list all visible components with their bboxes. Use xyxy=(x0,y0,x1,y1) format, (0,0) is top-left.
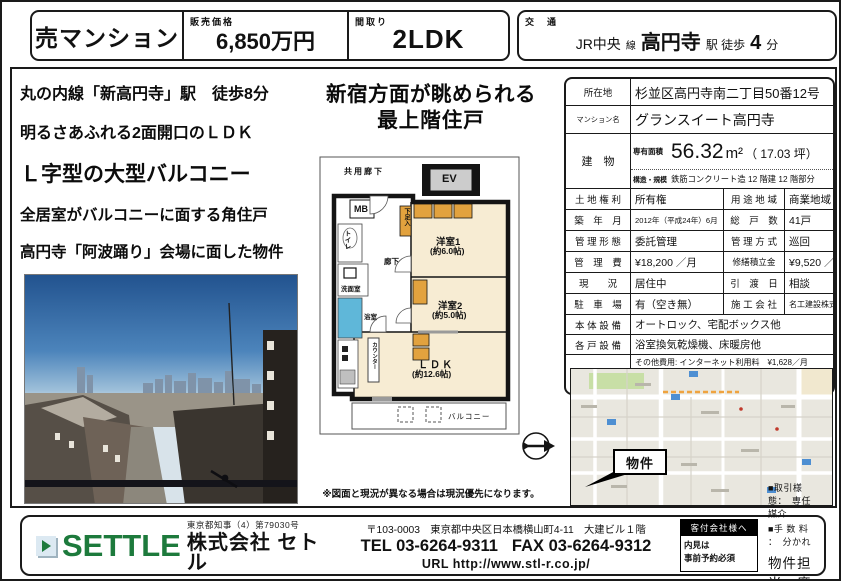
contact-person: 物件担当：廣田 xyxy=(768,552,814,581)
building-label: 建 物 xyxy=(566,134,631,188)
area-number: 56.32 xyxy=(671,140,724,164)
catch-copy-line: 明るさあふれる2面開口のＬＤＫ xyxy=(20,119,306,143)
headline-line1: 新宿方面が眺められる xyxy=(300,82,562,108)
zoning-label: 用 途 地 域 xyxy=(724,189,785,209)
header-left-box: 売マンション 販売価格 6,850万円 間取り 2LDK xyxy=(30,10,510,61)
footer: SETTLE 東京都知事（4）第79030号 株式会社 セトル 〒103-000… xyxy=(20,515,826,576)
zoning-value: 商業地域 xyxy=(785,189,833,209)
catch-copy-line: 高円寺「阿波踊り」会場に面した物件 xyxy=(20,240,306,262)
tel-fax-line: TEL 03-6264-9311 FAX 03-6264-9312 xyxy=(361,537,652,556)
access-station: 高円寺 xyxy=(641,26,701,55)
table-row-mgmt-fee: 管 理 費 ¥18,200 ／月 修繕積立金 ¥9,520 ／月 xyxy=(566,251,833,272)
units-value: 41戸 xyxy=(785,210,833,230)
access-line-unit: 線 xyxy=(626,37,636,52)
headline: 新宿方面が眺められる 最上階住戸 xyxy=(300,82,562,133)
units-label: 総 戸 数 xyxy=(724,210,785,230)
plan-corridor-label: 廊下 xyxy=(384,256,399,267)
parking-label: 駐 車 場 xyxy=(566,294,631,314)
layout-cell: 間取り 2LDK xyxy=(347,12,508,59)
access-value: JR中央 線 高円寺 駅 徒歩 4 分 xyxy=(576,26,779,55)
price-cell: 販売価格 6,850万円 xyxy=(182,12,347,59)
plan-note: ※図面と現況が異なる場合は現況優先になります。 xyxy=(298,486,564,500)
structure-value: 鉄筋コンクリート造 12 階建 12 階部分 xyxy=(671,173,815,185)
plan-washroom-label: 洗面室 xyxy=(341,283,361,293)
access-line-name: JR中央 xyxy=(576,34,621,54)
mgmt-fee-label: 管 理 費 xyxy=(566,252,631,272)
agent-notice-box: 客付会社様へ 内見は 事前予約必須 xyxy=(680,519,758,572)
flyer-sheet: 売マンション 販売価格 6,850万円 間取り 2LDK 交 通 JR中央 線 … xyxy=(0,0,841,581)
table-row-building: 建 物 専有面積 56.32 m² （ 17.03 坪） 構造・規模 鉄筋コンク… xyxy=(566,133,833,188)
parking-value: 有（空き無） xyxy=(631,294,724,314)
building-name-label: マンション名 xyxy=(566,106,631,133)
catch-copy-list: 丸の内線「新高円寺」駅 徒歩8分 明るさあふれる2面開口のＬＤＫ Ｌ字型の大型バ… xyxy=(20,80,306,262)
land-label: 土 地 権 利 xyxy=(566,189,631,209)
agent-notice-line2: 事前予約必須 xyxy=(684,552,754,565)
header-access-box: 交 通 JR中央 線 高円寺 駅 徒歩 4 分 xyxy=(517,10,837,61)
agent-notice-line1: 内見は xyxy=(684,539,754,552)
deal-type: ■取引様態： 専任媒介 xyxy=(768,481,814,520)
compass-icon xyxy=(523,433,555,459)
plan-elevator-label: EV xyxy=(442,173,457,185)
access-minutes-unit: 分 xyxy=(766,36,778,53)
access-minutes: 4 xyxy=(750,32,761,55)
builder-label: 施 工 会 社 xyxy=(724,294,785,314)
catch-copy-line: 全居室がバルコニーに面する角住戸 xyxy=(20,203,306,225)
plan-shoe-cabinet-label: 下足入 xyxy=(402,208,411,226)
table-row-name: マンション名 グランスイート高円寺 xyxy=(566,105,833,133)
property-map-marker: 物件 xyxy=(613,449,667,475)
structure-label: 構造・規模 xyxy=(631,174,671,184)
contact-block: 〒103-0003 東京都中央区日本橋横山町4-11 大建ビル１階 TEL 03… xyxy=(342,521,670,571)
table-row-land: 土 地 権 利 所有権 用 途 地 域 商業地域 xyxy=(566,188,833,209)
address-value: 杉並区高円寺南二丁目50番12号 xyxy=(631,79,833,105)
table-row-built: 築 年 月 2012年（平成24年）6月 総 戸 数 41戸 xyxy=(566,209,833,230)
plan-room1-size: (約6.0帖) xyxy=(430,245,464,257)
bldg-equip-label: 本 体 設 備 xyxy=(566,315,631,334)
reserve-label: 修繕積立金 xyxy=(724,252,785,272)
company-url: URL http://www.stl-r.co.jp/ xyxy=(422,557,590,571)
plan-ldk-size: (約12.6帖) xyxy=(412,368,451,380)
plan-toilet-label: トイレ xyxy=(341,230,351,250)
fax-number: FAX 03-6264-9312 xyxy=(512,537,651,556)
built-label: 築 年 月 xyxy=(566,210,631,230)
area-value: 56.32 m² （ 17.03 坪） xyxy=(671,140,818,164)
access-cell: 交 通 JR中央 線 高円寺 駅 徒歩 4 分 xyxy=(519,12,835,59)
status-value: 居住中 xyxy=(631,273,724,293)
unit-equip-value: 浴室換気乾燥機、床暖房他 xyxy=(631,335,833,354)
deal-info-block: ■取引様態： 専任媒介 ■手 数 料 ： 分かれ 物件担当：廣田 xyxy=(768,479,814,581)
details-table: 所在地 杉並区高円寺南二丁目50番12号 マンション名 グランスイート高円寺 建… xyxy=(564,77,835,395)
settle-logo-text: SETTLE xyxy=(62,530,181,561)
access-station-unit: 駅 徒歩 xyxy=(706,36,745,53)
layout-label: 間取り xyxy=(355,15,388,28)
view-photo xyxy=(24,274,298,504)
access-label: 交 通 xyxy=(525,15,558,28)
catch-copy-line: Ｌ字型の大型バルコニー xyxy=(20,158,306,188)
plan-meter-box-label: MB xyxy=(354,204,368,214)
headline-line2: 最上階住戸 xyxy=(300,108,562,134)
agent-notice-body: 内見は 事前予約必須 xyxy=(681,536,757,571)
catch-copy-line: 丸の内線「新高円寺」駅 徒歩8分 xyxy=(20,80,306,104)
price-value: 6,850万円 xyxy=(216,24,315,56)
floor-plan: 共用廊下 EV MB トイレ 下足入 洗面室 廊下 浴室 カウンター 洋室1 (… xyxy=(308,148,558,482)
company-name-block: 東京都知事（4）第79030号 株式会社 セトル xyxy=(187,519,332,573)
company-logo-block: SETTLE 東京都知事（4）第79030号 株式会社 セトル xyxy=(36,519,332,573)
settle-logo-icon xyxy=(36,536,56,556)
plan-common-corridor-label: 共用廊下 xyxy=(344,166,384,177)
table-row-status: 現 況 居住中 引 渡 日 相談 xyxy=(566,272,833,293)
mgmt-fee-value: ¥18,200 ／月 xyxy=(631,252,724,272)
area-unit: m² xyxy=(726,145,744,162)
builder-value: 名工建設株式会社 xyxy=(785,294,833,314)
address-label: 所在地 xyxy=(566,79,631,105)
unit-equip-label: 各 戸 設 備 xyxy=(566,335,631,354)
license-number: 東京都知事（4）第79030号 xyxy=(187,519,299,531)
mgmt-form-label: 管 理 形 態 xyxy=(566,231,631,251)
mgmt-way-value: 巡回 xyxy=(785,231,833,251)
built-value: 2012年（平成24年）6月 xyxy=(631,210,724,230)
table-row-mgmt-form: 管 理 形 態 委託管理 管 理 方 式 巡回 xyxy=(566,230,833,251)
building-cell: 専有面積 56.32 m² （ 17.03 坪） 構造・規模 鉄筋コンクリート造… xyxy=(631,134,833,188)
land-value: 所有権 xyxy=(631,189,724,209)
status-label: 現 況 xyxy=(566,273,631,293)
company-name: 株式会社 セトル xyxy=(187,533,332,573)
price-label: 販売価格 xyxy=(190,15,234,28)
mgmt-form-value: 委託管理 xyxy=(631,231,724,251)
table-row-unit-equip: 各 戸 設 備 浴室換気乾燥機、床暖房他 xyxy=(566,334,833,354)
play-triangle-icon xyxy=(42,540,51,552)
company-address: 〒103-0003 東京都中央区日本橋横山町4-11 大建ビル１階 xyxy=(366,521,646,536)
table-row-parking: 駐 車 場 有（空き無） 施 工 会 社 名工建設株式会社 xyxy=(566,293,833,314)
table-row-address: 所在地 杉並区高円寺南二丁目50番12号 xyxy=(566,79,833,105)
plan-counter-label: カウンター xyxy=(370,342,378,370)
plan-balcony-label: バルコニー xyxy=(448,411,490,422)
structure-row: 構造・規模 鉄筋コンクリート造 12 階建 12 階部分 xyxy=(631,170,833,188)
area-row: 専有面積 56.32 m² （ 17.03 坪） xyxy=(631,134,833,170)
tel-number: TEL 03-6264-9311 xyxy=(361,537,498,556)
sale-type-cell: 売マンション xyxy=(32,12,182,59)
plan-bathroom-label: 浴室 xyxy=(364,311,377,321)
building-name-value: グランスイート高円寺 xyxy=(631,106,833,133)
fee-type: ■手 数 料 ： 分かれ xyxy=(768,522,814,548)
area-tsubo: （ 17.03 坪） xyxy=(745,145,818,162)
bldg-equip-value: オートロック、宅配ボックス他 xyxy=(631,315,833,334)
view-photo-graphic xyxy=(25,275,298,504)
plan-room2-size: (約5.0帖) xyxy=(432,309,466,321)
table-row-bldg-equip: 本 体 設 備 オートロック、宅配ボックス他 xyxy=(566,314,833,334)
handover-value: 相談 xyxy=(785,273,833,293)
layout-value: 2LDK xyxy=(393,24,465,55)
sale-type-label: 売マンション xyxy=(35,19,179,53)
area-label: 専有面積 xyxy=(631,146,671,157)
reserve-value: ¥9,520 ／月 xyxy=(785,252,833,272)
mgmt-way-label: 管 理 方 式 xyxy=(724,231,785,251)
handover-label: 引 渡 日 xyxy=(724,273,785,293)
agent-notice-title: 客付会社様へ xyxy=(681,520,757,536)
